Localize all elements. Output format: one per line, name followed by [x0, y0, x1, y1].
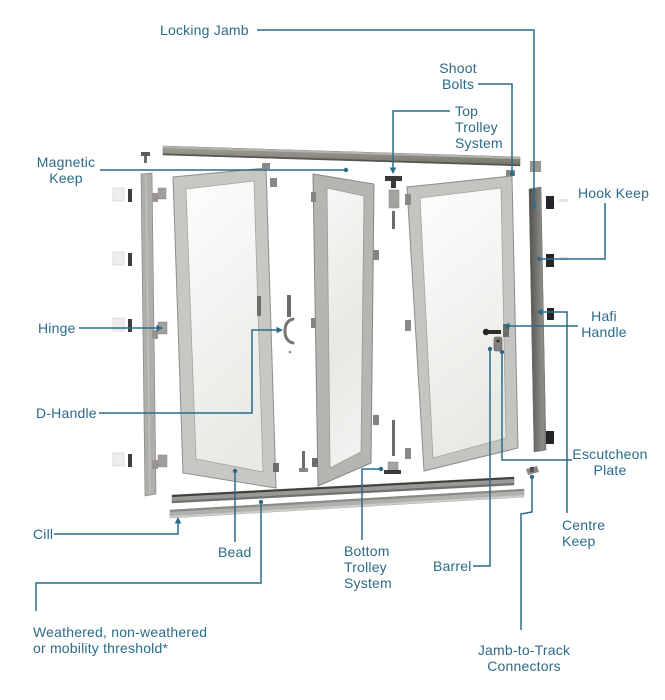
- d-handle-part: [285, 319, 293, 353]
- leader-cill: [54, 521, 178, 534]
- bifold-door-diagram: Locking Jamb Shoot Bolts Top Trolley Sys…: [0, 0, 665, 700]
- escutcheon-barrel-part: [494, 337, 502, 351]
- bottom-trolley-part: [384, 462, 401, 474]
- door-panel-3: [405, 170, 518, 471]
- shoot-bolt-rod-2: [392, 420, 395, 456]
- top-trolley-part: [385, 176, 402, 229]
- label-top-trolley-system: Top Trolley System: [455, 103, 503, 151]
- door-panel-1: [173, 163, 279, 488]
- diagram-canvas: [0, 0, 665, 700]
- left-jamb: [141, 173, 158, 496]
- label-escutcheon-plate: Escutcheon Plate: [556, 446, 664, 478]
- shoot-bolt-rod-1: [287, 295, 291, 317]
- label-hinge: Hinge: [38, 320, 76, 336]
- magnetic-keep-part: [141, 152, 150, 163]
- label-bottom-trolley-system: Bottom Trolley System: [344, 543, 392, 591]
- jamb-top-part: [530, 161, 541, 172]
- label-cill: Cill: [33, 526, 53, 542]
- label-jamb-to-track-connectors: Jamb-to-Track Connectors: [452, 642, 596, 674]
- shoot-bolt-rod-3: [299, 451, 308, 472]
- label-bead: Bead: [218, 544, 252, 560]
- label-centre-keep: Centre Keep: [562, 517, 605, 549]
- label-threshold: Weathered, non-weathered or mobility thr…: [33, 624, 207, 656]
- centre-keep-part: [526, 466, 539, 475]
- leader-jamb-to-track: [521, 478, 532, 630]
- door-panel-2: [311, 174, 379, 486]
- label-hook-keep: Hook Keep: [578, 185, 649, 201]
- label-d-handle: D-Handle: [36, 405, 97, 421]
- label-hafi-handle: Hafi Handle: [562, 308, 646, 340]
- label-barrel: Barrel: [433, 558, 472, 574]
- label-locking-jamb: Locking Jamb: [160, 22, 249, 38]
- leader-hook-keep: [541, 203, 605, 259]
- label-magnetic-keep: Magnetic Keep: [24, 154, 108, 186]
- label-shoot-bolts: Shoot Bolts: [428, 60, 488, 92]
